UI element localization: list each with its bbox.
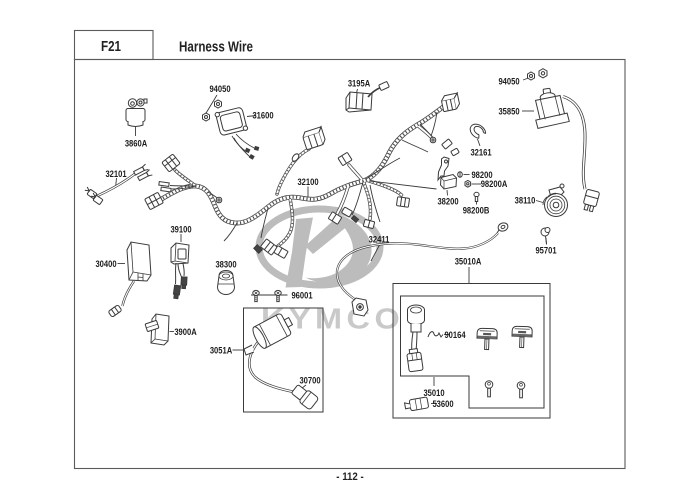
svg-text:38110: 38110 xyxy=(515,195,536,206)
svg-text:3051A: 3051A xyxy=(210,345,232,356)
svg-text:32100: 32100 xyxy=(297,176,318,187)
svg-text:31600: 31600 xyxy=(252,110,273,121)
svg-text:30400: 30400 xyxy=(95,258,116,269)
svg-text:32101: 32101 xyxy=(105,168,126,179)
svg-text:35010: 35010 xyxy=(423,387,444,398)
svg-text:3900A: 3900A xyxy=(174,326,196,337)
svg-text:39100: 39100 xyxy=(170,224,191,235)
svg-text:F21: F21 xyxy=(101,38,121,55)
svg-text:- 112 -: - 112 - xyxy=(336,472,364,484)
svg-text:3860A: 3860A xyxy=(125,138,147,149)
svg-text:94050: 94050 xyxy=(209,83,230,94)
svg-text:3195A: 3195A xyxy=(348,78,370,89)
svg-text:35850: 35850 xyxy=(498,106,519,117)
svg-text:30700: 30700 xyxy=(299,375,320,386)
svg-text:35010A: 35010A xyxy=(455,256,482,267)
svg-text:38300: 38300 xyxy=(215,259,236,270)
svg-text:90164: 90164 xyxy=(444,329,465,340)
svg-text:Harness Wire: Harness Wire xyxy=(179,38,253,55)
svg-text:94050: 94050 xyxy=(498,76,519,87)
svg-text:98200A: 98200A xyxy=(481,178,508,189)
svg-text:32161: 32161 xyxy=(470,147,491,158)
svg-text:98200B: 98200B xyxy=(463,205,490,216)
svg-text:38200: 38200 xyxy=(437,196,458,207)
svg-text:95701: 95701 xyxy=(535,245,556,256)
svg-text:96001: 96001 xyxy=(291,290,312,301)
svg-text:53600: 53600 xyxy=(432,398,453,409)
